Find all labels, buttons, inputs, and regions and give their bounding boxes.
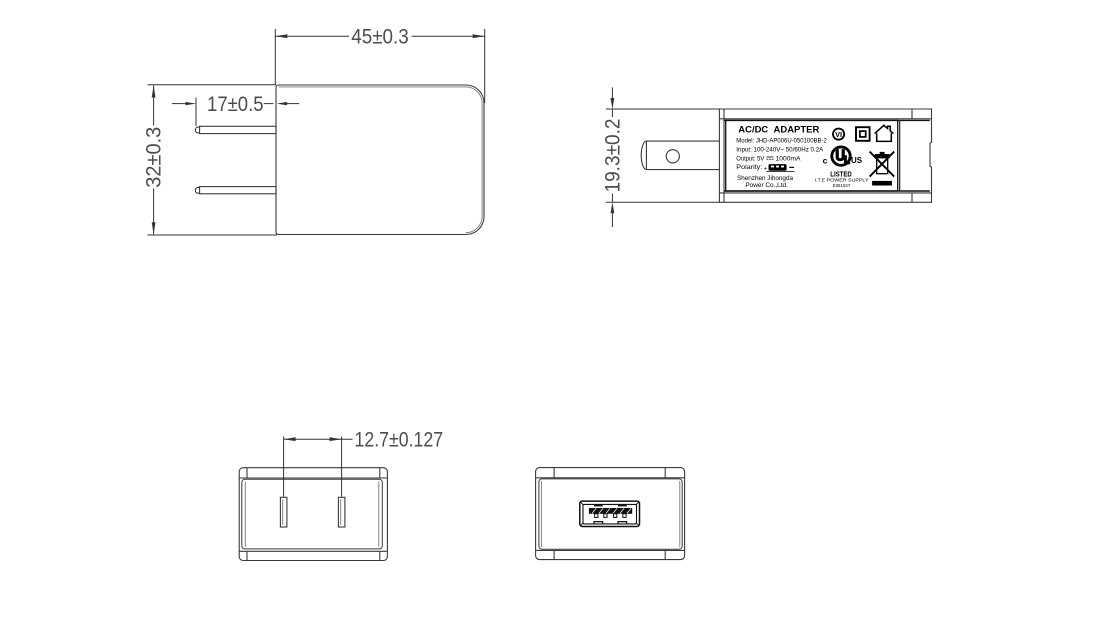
svg-text:19.3±0.2: 19.3±0.2 xyxy=(601,119,624,193)
svg-text:Model: JHD-AP006U-050100BB-2: Model: JHD-AP006U-050100BB-2 xyxy=(736,138,827,144)
svg-text:c: c xyxy=(823,155,828,165)
svg-text:Output: 5V: Output: 5V xyxy=(736,157,764,163)
svg-text:VI: VI xyxy=(835,130,842,139)
svg-text:45±0.3: 45±0.3 xyxy=(351,25,409,48)
svg-text:Polarity:: Polarity: xyxy=(736,165,762,171)
svg-text:32±0.3: 32±0.3 xyxy=(142,127,165,188)
svg-text:AC/DC ADAPTER: AC/DC ADAPTER xyxy=(738,124,819,135)
svg-text:Input: 100-240V~ 50/60Hz 0.2: Input: 100-240V~ 50/60Hz 0.2A xyxy=(736,148,823,154)
svg-text:12.7±0.127: 12.7±0.127 xyxy=(355,429,444,452)
svg-text:I.T.E POWER SUPPLY: I.T.E POWER SUPPLY xyxy=(815,177,870,182)
svg-text:Power Co.,Ltd.: Power Co.,Ltd. xyxy=(745,183,788,189)
svg-text:US: US xyxy=(851,156,863,165)
svg-text:1000mA: 1000mA xyxy=(776,157,801,163)
svg-text:17±0.5: 17±0.5 xyxy=(207,93,264,116)
svg-text:E361527: E361527 xyxy=(833,183,851,189)
svg-text:Shenzhen Jihongda: Shenzhen Jihongda xyxy=(737,176,794,182)
